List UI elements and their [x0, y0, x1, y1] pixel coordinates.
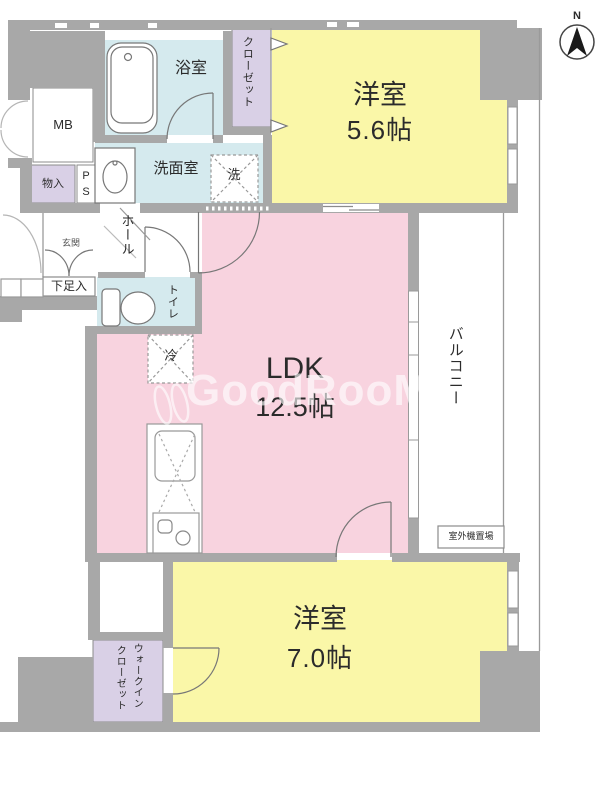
bathroom-label: 浴室: [158, 60, 224, 78]
ldk-balcony-window: [409, 291, 419, 518]
bedroom1-name: 洋室: [322, 80, 438, 110]
bedroom1-window-1: [508, 107, 517, 144]
bathtub-inner: [111, 47, 153, 123]
bedroom2-floor: [173, 560, 507, 722]
wic-label-line1: ウォークイン: [131, 643, 142, 721]
compass-icon: [560, 25, 594, 59]
toilet-tank: [102, 289, 120, 326]
entrance-label: 玄関: [54, 238, 88, 248]
vanity-basin: [103, 161, 127, 193]
corridor-box-2: [21, 279, 43, 297]
washer-label: 洗: [220, 168, 248, 183]
outdoor-unit-label: 室外機置場: [438, 531, 504, 541]
wic-label-line2: クローゼット: [114, 645, 125, 723]
toilet-label: トイレ: [166, 284, 178, 332]
meter-box-label: MB: [40, 118, 86, 133]
bedroom1-area: 5.6帖: [322, 116, 438, 145]
vanity-tap: [113, 161, 117, 165]
exterior-door-swing-1: [1, 101, 28, 128]
bedroom2-area: 7.0帖: [268, 644, 372, 673]
hall-label: ホール: [119, 214, 134, 274]
balcony-label: バルコニー: [446, 326, 463, 436]
bedroom2-window-2: [508, 613, 518, 646]
closet-label: クローゼット: [241, 36, 253, 128]
compass-north-label: N: [569, 10, 585, 22]
pipe-space-label: P S: [78, 169, 94, 201]
stove-burner-2: [176, 531, 190, 545]
refrigerator-label: 冷: [156, 349, 186, 364]
stove-burner-1: [158, 520, 172, 533]
toilet-door-swing: [145, 227, 190, 272]
bedroom2-window-1: [508, 571, 518, 608]
corridor-door-swing: [3, 215, 41, 273]
bedroom2-name: 洋室: [268, 604, 372, 634]
bedroom1-sliding-door: [323, 204, 379, 212]
kitchen-sink: [155, 431, 195, 481]
corridor-box-1: [1, 279, 21, 297]
ldk-name: LDK: [245, 352, 345, 386]
bathtub-faucet: [125, 54, 132, 61]
shoe-cabinet-label: 下足入: [43, 280, 95, 293]
exterior-door-swing-2: [1, 130, 28, 157]
floor-plan: 洋室 5.6帖 LDK 12.5帖 洋室 7.0帖 浴室 洗面室 トイレ ホール…: [0, 0, 600, 800]
walk-in-closet-floor: [93, 640, 163, 722]
toilet-bowl: [121, 292, 155, 324]
bedroom1-window-2: [508, 149, 517, 184]
ldk-area: 12.5帖: [235, 392, 355, 422]
washroom-label: 洗面室: [138, 161, 214, 178]
storage-label: 物入: [34, 178, 72, 190]
shoe-cabinet-door-swing-left: [45, 250, 69, 276]
shoe-cabinet-door-swing-right: [69, 250, 93, 276]
